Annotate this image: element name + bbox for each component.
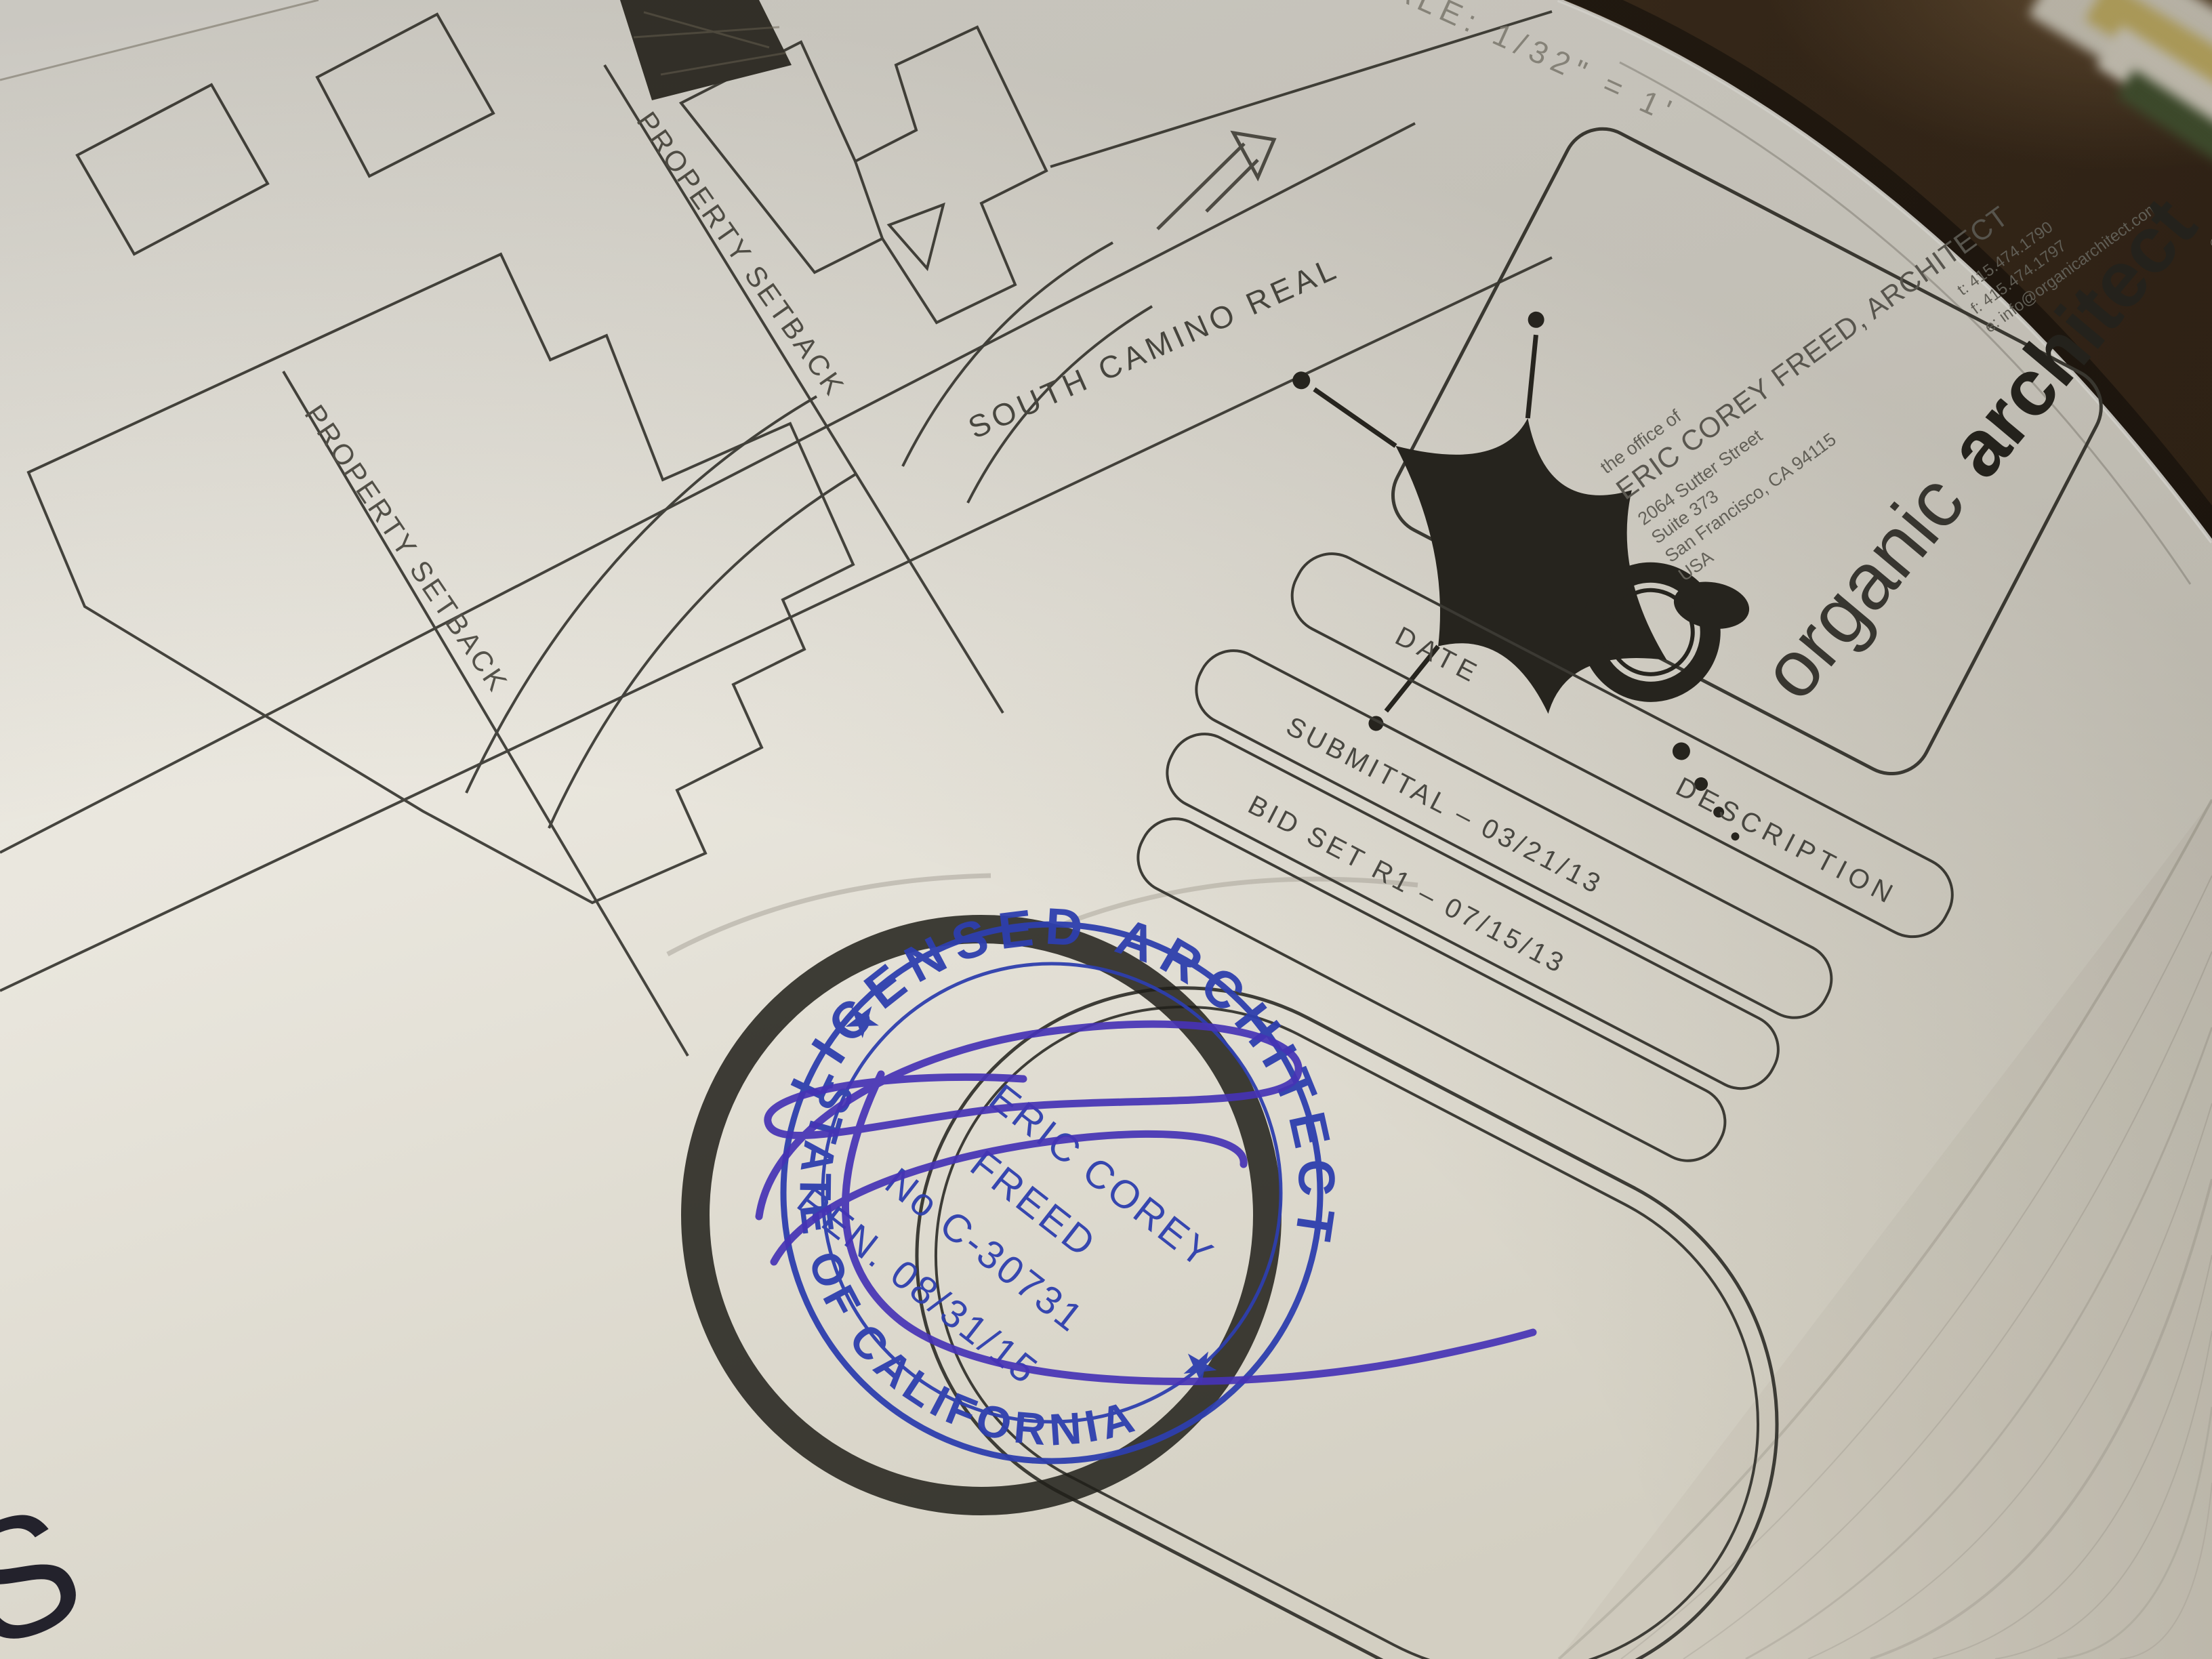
photo-of-blueprints: PROPERTY SETBACK PROPERTY SETBACK SOUTH … xyxy=(0,0,2212,1659)
vignette xyxy=(0,0,2212,1659)
artwork-svg: PROPERTY SETBACK PROPERTY SETBACK SOUTH … xyxy=(0,0,2212,1659)
